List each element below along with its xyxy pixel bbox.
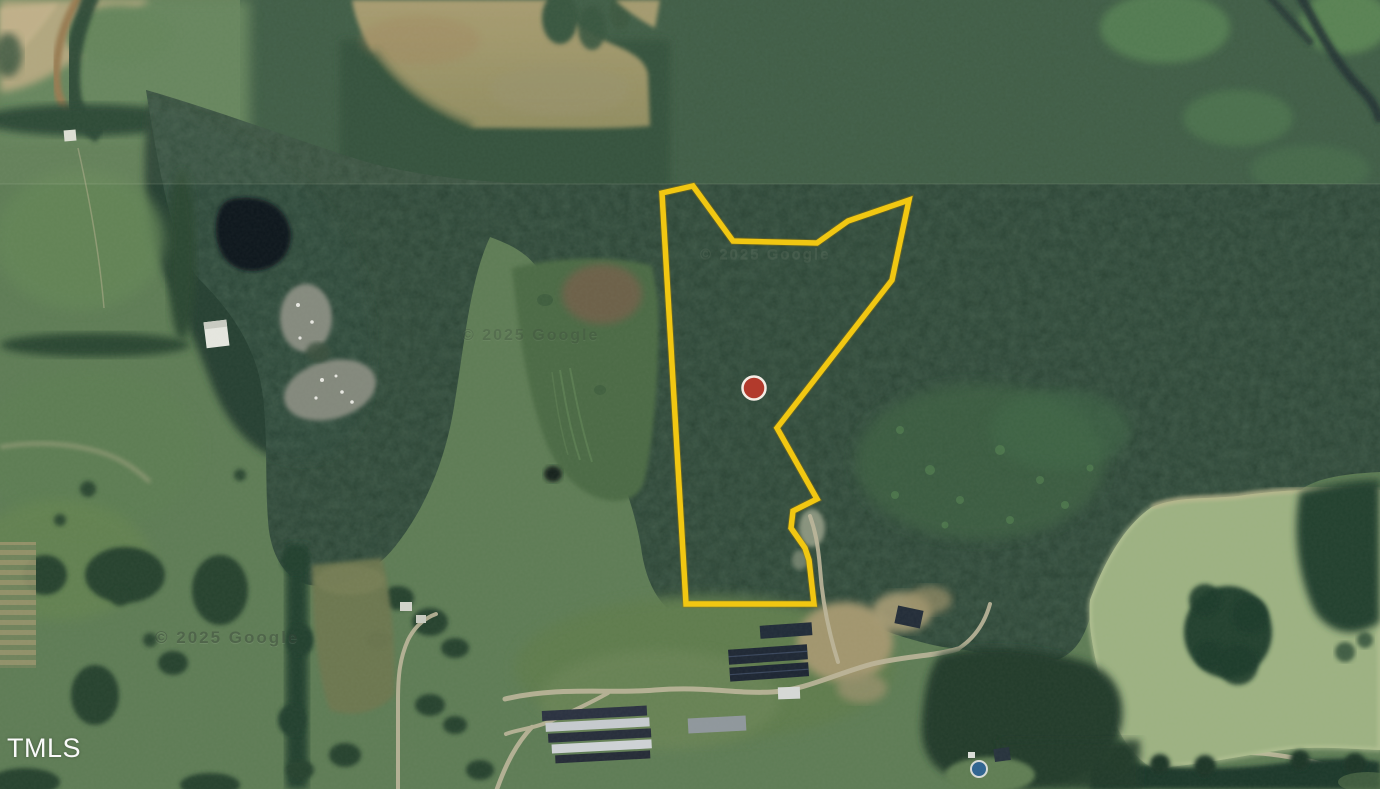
satellite-map-viewport[interactable]: © 2025 Google © 2025 Google © 2025 Googl…: [0, 0, 1380, 789]
parcel-marker[interactable]: [743, 377, 766, 400]
terrain-base: [0, 0, 1380, 789]
tmls-attribution: TMLS: [7, 733, 81, 764]
satellite-imagery[interactable]: [0, 0, 1380, 789]
